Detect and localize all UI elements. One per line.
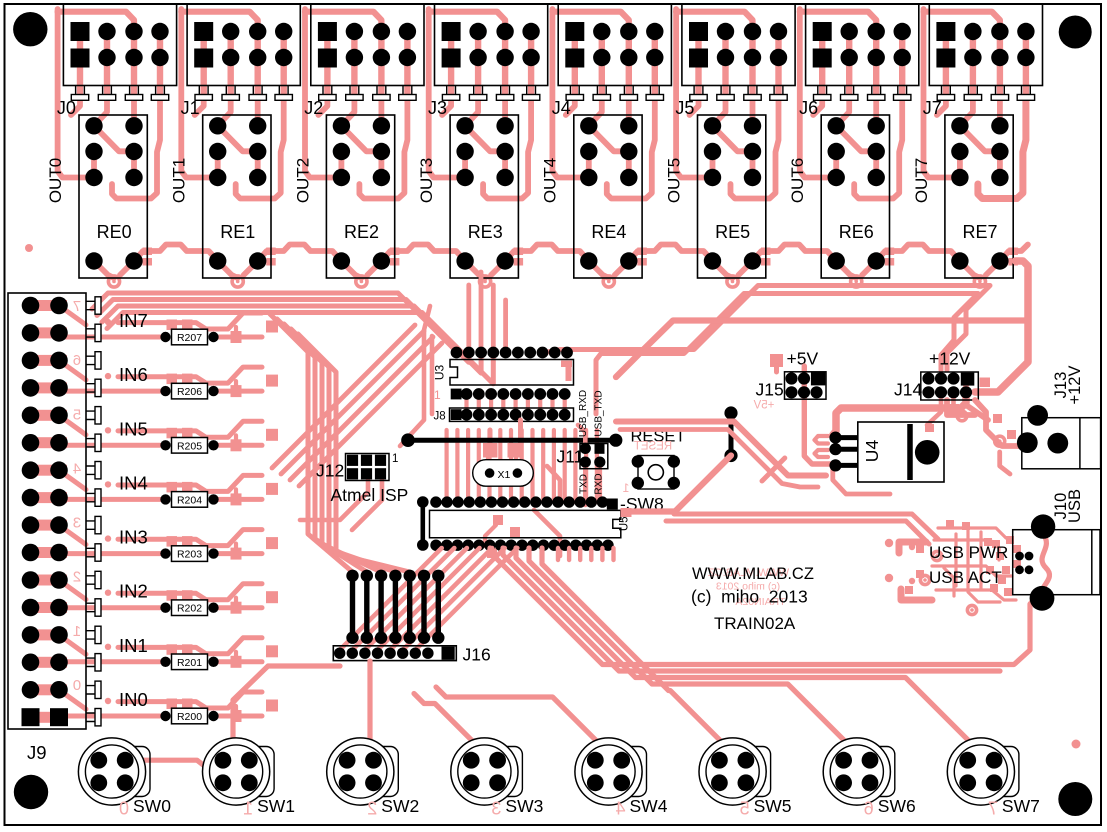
svg-text:J3: J3 [428, 98, 447, 118]
svg-text:R206: R206 [177, 386, 202, 398]
svg-text:RE7: RE7 [963, 222, 998, 242]
svg-text:SW3: SW3 [505, 796, 543, 816]
svg-text:SW1: SW1 [257, 796, 295, 816]
svg-text:OUT1: OUT1 [170, 158, 189, 203]
svg-text:IN5: IN5 [119, 418, 148, 439]
svg-text:(c) miho 2013: (c) miho 2013 [691, 586, 808, 606]
svg-text:OUT2: OUT2 [293, 158, 312, 203]
svg-text:SW4: SW4 [630, 796, 668, 816]
svg-text:5: 5 [740, 799, 750, 819]
svg-text:J2: J2 [304, 98, 323, 118]
svg-text:0: 0 [119, 799, 129, 819]
svg-text:IN2: IN2 [119, 581, 148, 602]
svg-text:RXD: RXD [594, 473, 605, 494]
svg-text:USB_RXD: USB_RXD [578, 390, 589, 437]
svg-text:+12V: +12V [929, 349, 971, 369]
svg-text:OUT0: OUT0 [46, 158, 65, 203]
svg-text:OUT5: OUT5 [664, 158, 683, 203]
svg-text:RE3: RE3 [468, 222, 503, 242]
svg-text:J9: J9 [27, 742, 47, 763]
svg-text:USB: USB [1066, 489, 1084, 523]
svg-text:J6: J6 [799, 98, 818, 118]
svg-text:R200: R200 [177, 711, 202, 723]
svg-text:USB ACT: USB ACT [929, 568, 1002, 587]
svg-text:J4: J4 [552, 98, 571, 118]
svg-text:6: 6 [73, 352, 81, 369]
svg-text:SW7: SW7 [1002, 796, 1040, 816]
svg-text:+12V: +12V [1066, 366, 1084, 405]
svg-text:IN6: IN6 [119, 364, 148, 385]
svg-text:IN4: IN4 [119, 472, 148, 493]
svg-text:7: 7 [988, 799, 998, 819]
svg-text:Atmel ISP: Atmel ISP [331, 485, 409, 505]
svg-text:J16: J16 [463, 645, 491, 665]
svg-text:J0: J0 [57, 98, 76, 118]
svg-text:1: 1 [434, 388, 441, 402]
svg-text:RE2: RE2 [344, 222, 379, 242]
svg-text:R201: R201 [177, 657, 202, 669]
svg-text:RE5: RE5 [715, 222, 750, 242]
svg-text:6: 6 [864, 799, 874, 819]
svg-text:1: 1 [243, 799, 253, 819]
svg-text:RE4: RE4 [591, 222, 626, 242]
svg-text:4: 4 [615, 799, 625, 819]
svg-text:USB PWR: USB PWR [929, 543, 1008, 562]
svg-text:WWW.MLAB.CZ: WWW.MLAB.CZ [692, 565, 814, 583]
svg-text:IN1: IN1 [119, 635, 148, 656]
svg-text:USB_TXD: USB_TXD [594, 390, 605, 436]
svg-text:J15: J15 [756, 380, 784, 400]
svg-text:TXD: TXD [579, 474, 590, 494]
svg-text:OUT3: OUT3 [417, 158, 436, 203]
svg-text:J8: J8 [434, 411, 446, 423]
svg-text:OUT4: OUT4 [541, 158, 560, 203]
svg-text:U5: U5 [619, 516, 631, 531]
svg-text:J12: J12 [316, 461, 344, 481]
svg-text:2: 2 [367, 799, 377, 819]
svg-text:SW6: SW6 [878, 796, 916, 816]
svg-text:1: 1 [73, 623, 81, 640]
svg-text:4: 4 [73, 460, 81, 477]
svg-text:7: 7 [73, 298, 81, 315]
svg-text:3: 3 [491, 799, 501, 819]
svg-text:R203: R203 [177, 549, 202, 561]
svg-text:J7: J7 [923, 98, 942, 118]
svg-text:RE0: RE0 [97, 222, 132, 242]
svg-text:1: 1 [392, 453, 398, 465]
svg-text:5: 5 [73, 406, 81, 423]
svg-text:SW0: SW0 [133, 796, 171, 816]
svg-text:R204: R204 [177, 494, 202, 506]
svg-text:R205: R205 [177, 440, 202, 452]
svg-text:+5V: +5V [753, 400, 774, 412]
svg-text:J11: J11 [557, 447, 584, 467]
svg-text:R202: R202 [177, 603, 202, 615]
svg-text:J1: J1 [181, 98, 200, 118]
svg-text:IN0: IN0 [119, 689, 148, 710]
svg-text:U3: U3 [433, 365, 447, 381]
svg-text:OUT6: OUT6 [788, 158, 807, 203]
svg-text:SW2: SW2 [381, 796, 419, 816]
svg-text:1: 1 [622, 481, 629, 495]
svg-text:RE6: RE6 [839, 222, 874, 242]
svg-text:IN3: IN3 [119, 527, 148, 548]
svg-text:RE1: RE1 [220, 222, 255, 242]
svg-text:0: 0 [73, 677, 81, 694]
svg-text:J5: J5 [675, 98, 694, 118]
svg-text:RESET: RESET [634, 441, 672, 453]
svg-text:J14: J14 [894, 380, 922, 400]
svg-text:R207: R207 [177, 332, 202, 344]
svg-text:2: 2 [73, 569, 81, 586]
svg-text:X1: X1 [498, 469, 511, 481]
svg-text:OUT7: OUT7 [912, 158, 931, 203]
svg-text:SW5: SW5 [754, 796, 792, 816]
svg-text:3: 3 [73, 515, 81, 532]
svg-text:TRAIN02A: TRAIN02A [714, 614, 796, 633]
svg-text:IN7: IN7 [119, 310, 148, 331]
svg-text:U4: U4 [862, 440, 882, 463]
